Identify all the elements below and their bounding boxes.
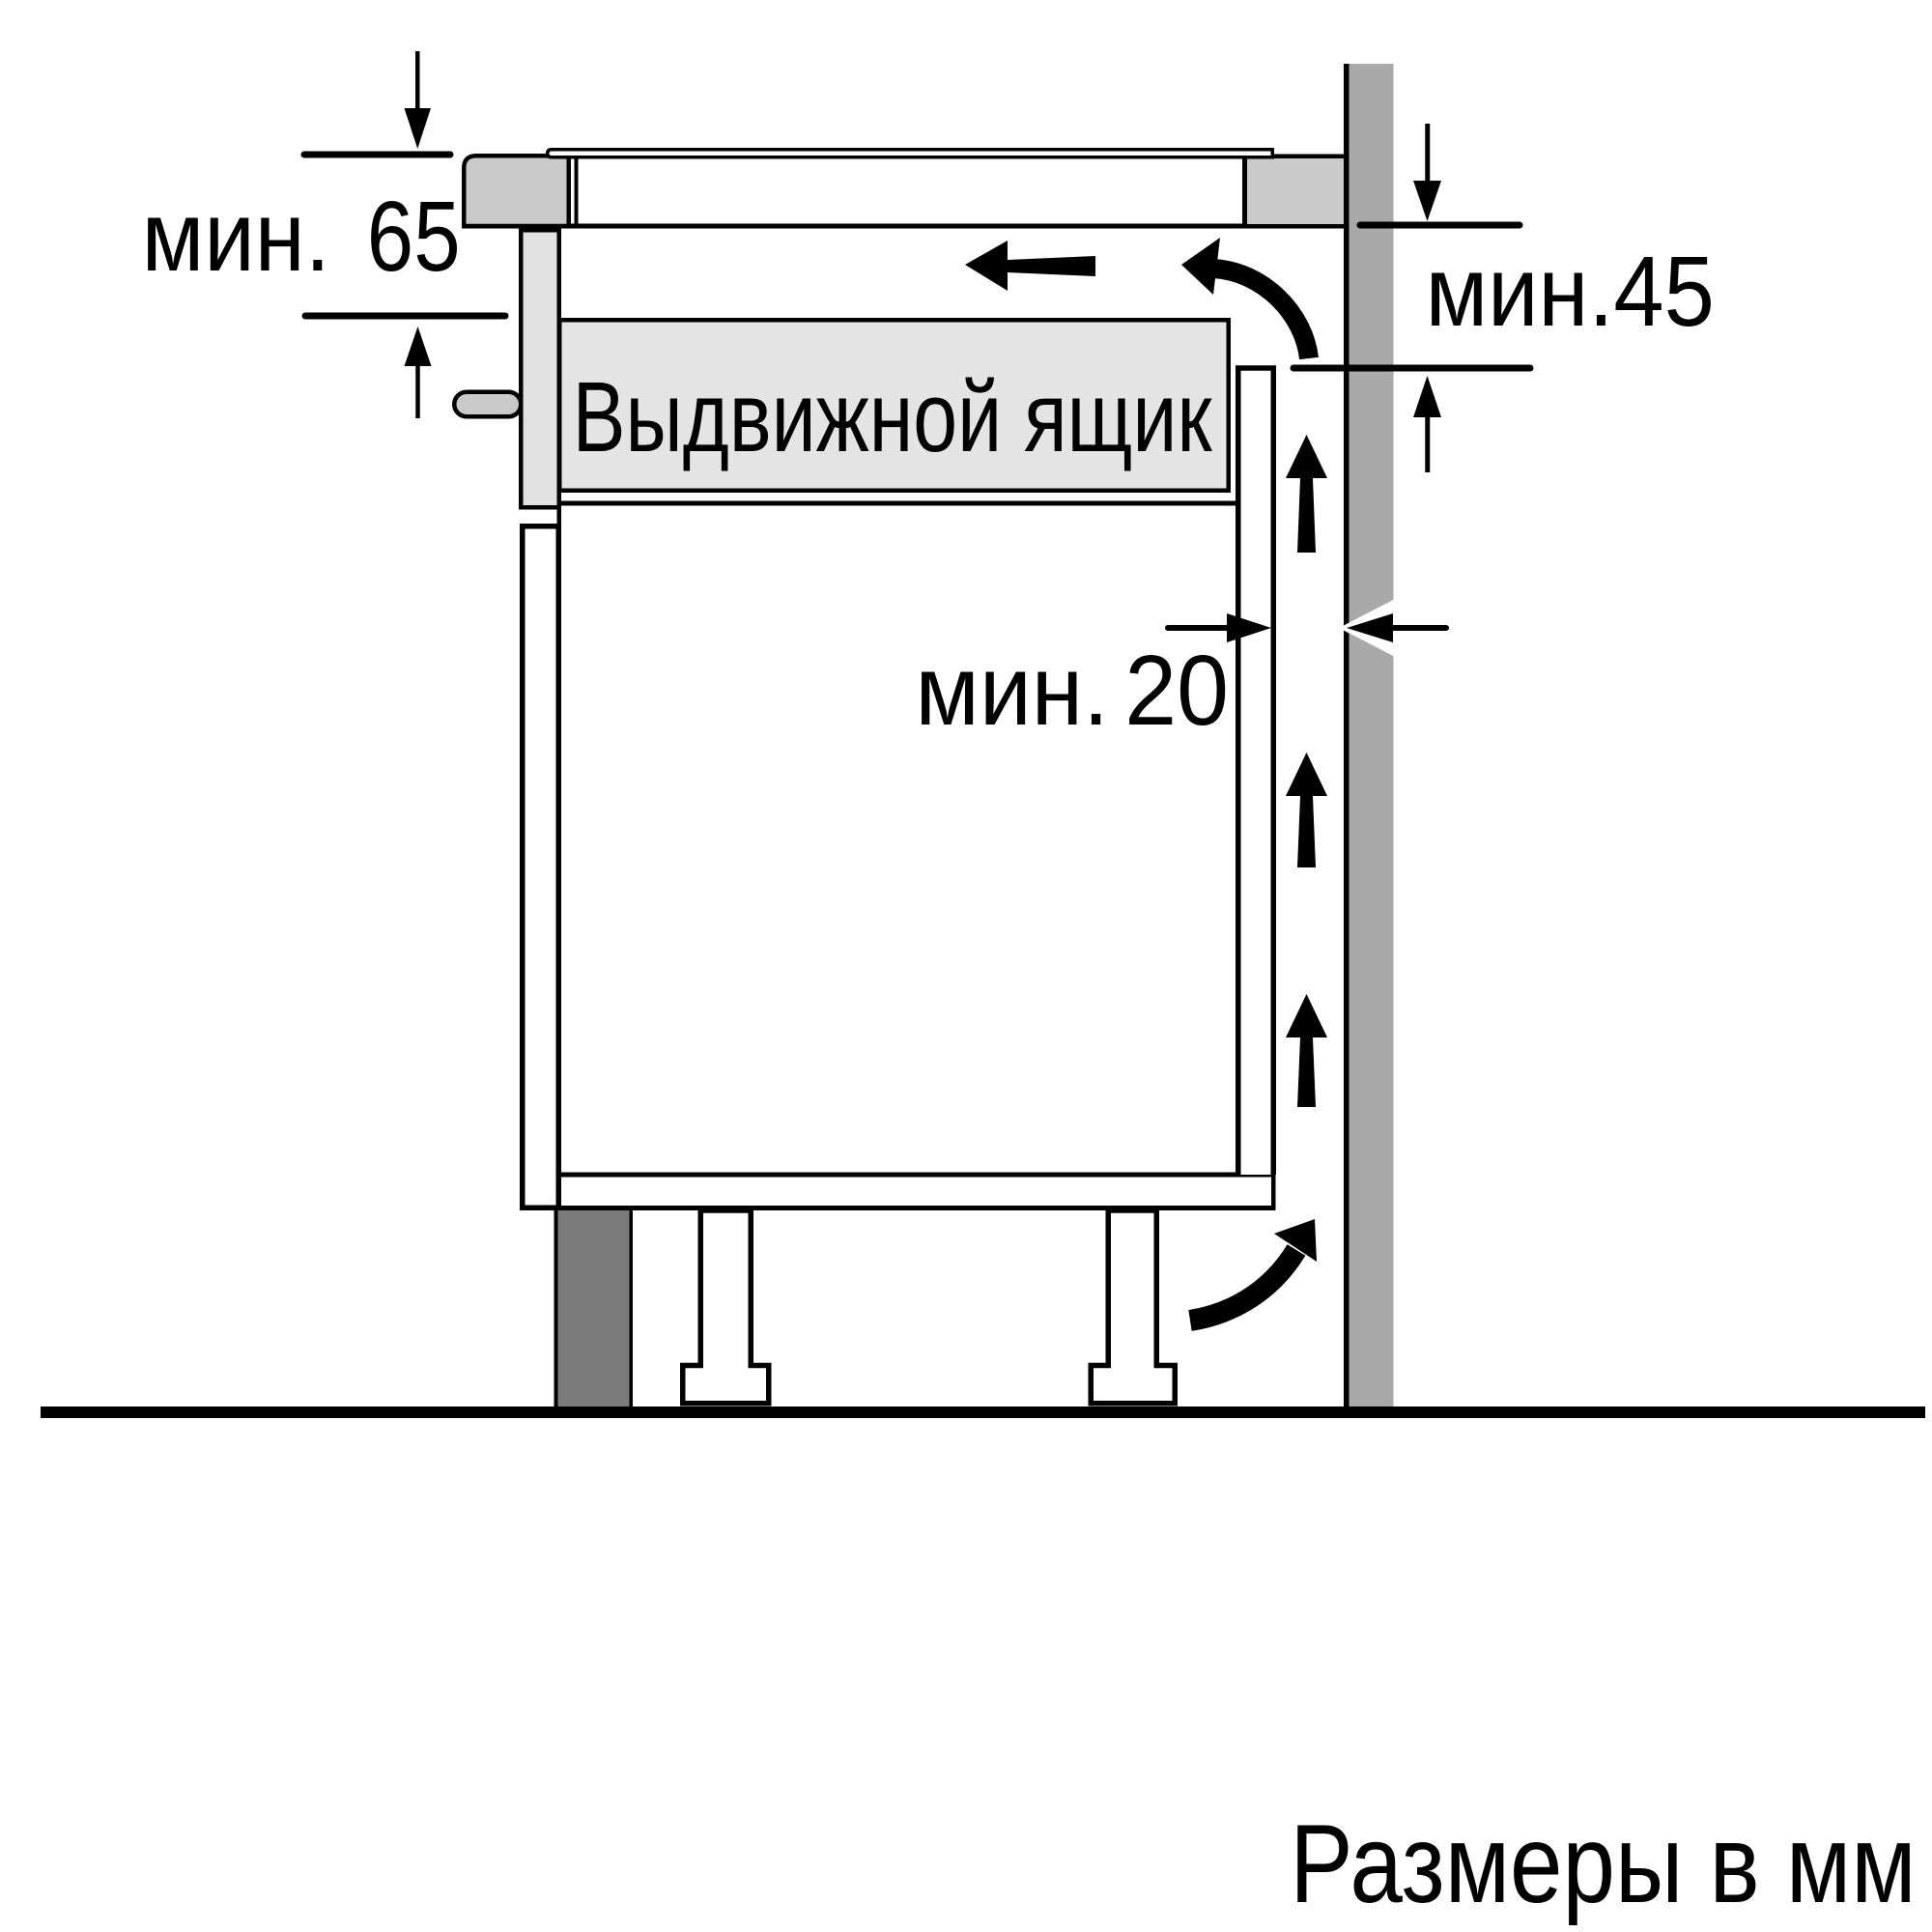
svg-text:мин.45: мин.45 [1426, 236, 1715, 347]
svg-text:65: 65 [367, 182, 461, 293]
svg-text:Выдвижной ящик: Выдвижной ящик [573, 361, 1213, 472]
svg-text:20: 20 [1124, 636, 1229, 746]
svg-text:Размеры в мм: Размеры в мм [1290, 1802, 1916, 1926]
svg-text:мин.: мин. [915, 636, 1109, 746]
svg-text:мин.: мин. [142, 181, 330, 292]
